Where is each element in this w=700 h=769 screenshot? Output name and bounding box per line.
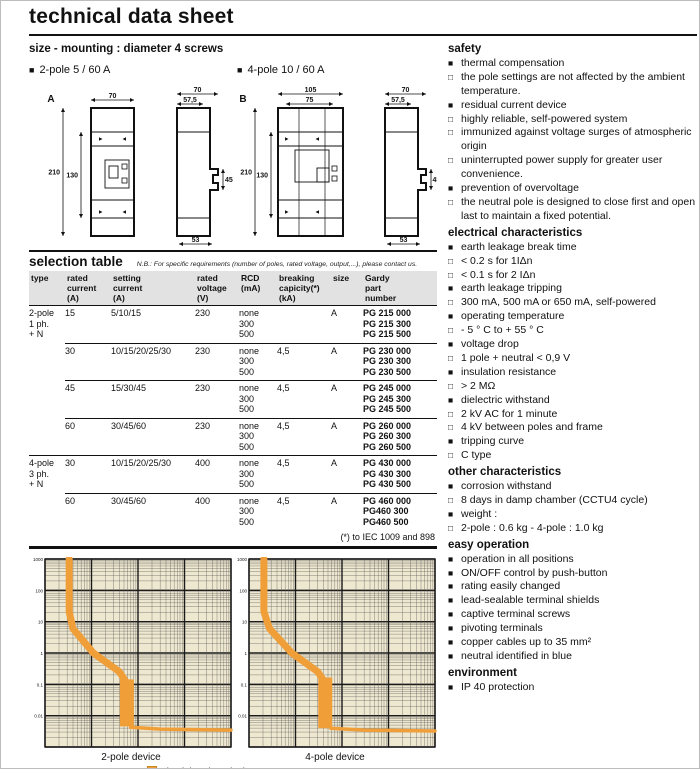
table-cell: 15/30/45 [111, 381, 195, 419]
table-cell: 400 [195, 493, 239, 530]
list-item: ■neutral identified in blue [448, 650, 699, 664]
list-item: ■earth leakage tripping [448, 282, 699, 296]
table-cell [29, 343, 65, 381]
svg-text:0.01: 0.01 [238, 713, 247, 718]
list-item: □< 0.1 s for 2 IΔn [448, 269, 699, 283]
list-item: □2 kV AC for 1 minute [448, 408, 699, 422]
filled-square-bullet-icon: ■ [448, 435, 461, 449]
list-item-text: 1 pole + neutral < 0,9 V [461, 352, 699, 366]
list-item: □300 mA, 500 mA or 650 mA, self-powered [448, 296, 699, 310]
svg-text:1000: 1000 [237, 557, 248, 562]
list-item-text: thermal compensation [461, 57, 699, 71]
list-item: ■operation in all positions [448, 553, 699, 567]
hollow-square-bullet-icon: □ [448, 269, 461, 283]
svg-text:70: 70 [109, 93, 117, 100]
page-title: technical data sheet [29, 5, 234, 29]
table-cell: PG 215 000PG 215 300PG 215 500 [363, 306, 437, 344]
list-item-text: - 5 ° C to + 55 ° C [461, 324, 699, 338]
list-item-text: pivoting terminals [461, 622, 699, 636]
hollow-square-bullet-icon: □ [448, 296, 461, 310]
diagram-2pole: A702101307057,54553 [29, 84, 233, 246]
svg-text:100: 100 [239, 588, 247, 593]
chart-legend: circuit breaker tripping zones [147, 766, 437, 769]
column-header: Gardypartnumber [363, 271, 437, 306]
list-item: ■pivoting terminals [448, 622, 699, 636]
table-cell: none300500 [239, 306, 277, 344]
list-item-text: ON/OFF control by push-button [461, 567, 699, 581]
list-item-text: copper cables up to 35 mm² [461, 636, 699, 650]
table-cell: 4,5 [277, 381, 331, 419]
tripping-curve-charts: 10001001010.10.012-pole device1000100101… [29, 557, 437, 763]
variant-2pole-label: 2-pole 5 / 60 A [39, 64, 110, 76]
filled-square-bullet-icon: ■ [448, 99, 461, 113]
list-item-text: captive terminal screws [461, 608, 699, 622]
svg-text:210: 210 [240, 170, 252, 177]
svg-text:1000: 1000 [33, 557, 44, 562]
table-cell [277, 306, 331, 344]
sidebar-section-title: other characteristics [448, 466, 699, 480]
list-item: ■lead-sealable terminal shields [448, 594, 699, 608]
svg-text:45: 45 [433, 177, 438, 184]
svg-text:57,5: 57,5 [183, 97, 197, 104]
table-cell: A [331, 343, 363, 381]
list-item-text: earth leakage break time [461, 241, 699, 255]
hollow-square-bullet-icon: □ [448, 494, 461, 508]
list-item: ■captive terminal screws [448, 608, 699, 622]
table-cell: 30 [65, 343, 111, 381]
table-cell: 10/15/20/25/30 [111, 343, 195, 381]
variant-4pole: ■ 4-pole 10 / 60 A [237, 64, 325, 76]
svg-text:0.01: 0.01 [34, 713, 43, 718]
list-item-text: IP 40 protection [461, 681, 699, 695]
filled-square-bullet-icon: ■ [448, 580, 461, 594]
svg-text:130: 130 [256, 173, 268, 180]
list-item: □2-pole : 0.6 kg - 4-pole : 1.0 kg [448, 522, 699, 536]
sidebar-section-title: easy operation [448, 539, 699, 553]
table-cell: none300500 [239, 381, 277, 419]
hollow-square-bullet-icon: □ [448, 324, 461, 338]
table-cell: none300500 [239, 343, 277, 381]
selection-table-note: N.B.: For specific requirements (number … [137, 261, 417, 268]
list-item: ■corrosion withstand [448, 480, 699, 494]
svg-text:53: 53 [400, 237, 408, 244]
chart-plot: 10001001010.10.01 [233, 557, 437, 751]
list-item-text: weight : [461, 508, 699, 522]
hollow-square-bullet-icon: □ [448, 255, 461, 269]
svg-text:57,5: 57,5 [391, 97, 405, 104]
list-item: ■tripping curve [448, 435, 699, 449]
table-cell: PG 260 000PG 260 300PG 260 500 [363, 418, 437, 456]
list-item-text: dielectric withstand [461, 394, 699, 408]
table-cell: 45 [65, 381, 111, 419]
size-mounting-heading: size - mounting : diameter 4 screws [29, 43, 437, 55]
table-cell: 10/15/20/25/30 [111, 456, 195, 494]
hollow-square-bullet-icon: □ [448, 126, 461, 154]
list-item: ■insulation resistance [448, 366, 699, 380]
column-header: breakingcapicity(*)(kA) [277, 271, 331, 306]
list-item: □highly reliable, self-powered system [448, 113, 699, 127]
filled-square-bullet-icon: ■ [448, 366, 461, 380]
list-item-text: C type [461, 449, 699, 463]
chart-plot: 10001001010.10.01 [29, 557, 233, 751]
svg-text:105: 105 [305, 87, 317, 94]
column-header: settingcurrent(A) [111, 271, 195, 306]
table-cell: 5/10/15 [111, 306, 195, 344]
table-row: 4515/30/45230none3005004,5APG 245 000PG … [29, 381, 437, 419]
svg-text:75: 75 [306, 97, 314, 104]
list-item: ■copper cables up to 35 mm² [448, 636, 699, 650]
list-item-text: prevention of overvoltage [461, 182, 699, 196]
table-row: 3010/15/20/25/30230none3005004,5APG 230 … [29, 343, 437, 381]
list-item-text: the pole settings are not affected by th… [461, 71, 699, 99]
tripping-curve-chart: 10001001010.10.012-pole device [29, 557, 233, 763]
selection-table-title: selection table [29, 254, 123, 269]
filled-square-bullet-icon: ■ [448, 182, 461, 196]
table-cell: PG 245 000PG 245 300PG 245 500 [363, 381, 437, 419]
hollow-square-bullet-icon: □ [448, 154, 461, 182]
list-item: ■rating easily changed [448, 580, 699, 594]
hollow-square-bullet-icon: □ [448, 522, 461, 536]
list-item: ■dielectric withstand [448, 394, 699, 408]
filled-square-bullet-icon: ■ [448, 57, 461, 71]
table-cell: 15 [65, 306, 111, 344]
list-item-text: voltage drop [461, 338, 699, 352]
list-item-text: residual current device [461, 99, 699, 113]
list-item-text: the neutral pole is designed to close fi… [461, 196, 699, 224]
list-item-text: 300 mA, 500 mA or 650 mA, self-powered [461, 296, 699, 310]
svg-text:B: B [239, 94, 246, 105]
table-cell: none300500 [239, 493, 277, 530]
filled-square-bullet-icon: ■ [448, 622, 461, 636]
list-item-text: earth leakage tripping [461, 282, 699, 296]
table-row: 6030/45/60230none3005004,5APG 260 000PG … [29, 418, 437, 456]
hollow-square-bullet-icon: □ [448, 113, 461, 127]
table-cell: 30/45/60 [111, 418, 195, 456]
list-item: ■thermal compensation [448, 57, 699, 71]
list-item: □C type [448, 449, 699, 463]
list-item-text: > 2 MΩ [461, 380, 699, 394]
variant-4pole-label: 4-pole 10 / 60 A [247, 64, 324, 76]
column-header: size [331, 271, 363, 306]
svg-text:0.1: 0.1 [241, 682, 248, 687]
dimension-diagrams: A702101307057,54553 B105752101307057,545… [29, 84, 437, 246]
list-item: ■ON/OFF control by push-button [448, 567, 699, 581]
sidebar-section-title: environment [448, 667, 699, 681]
list-item-text: 2-pole : 0.6 kg - 4-pole : 1.0 kg [461, 522, 699, 536]
square-bullet-icon: ■ [237, 65, 242, 75]
filled-square-bullet-icon: ■ [448, 594, 461, 608]
selection-table-section: selection table N.B.: For specific requi… [29, 250, 437, 549]
table-cell: 60 [65, 493, 111, 530]
table-cell: 230 [195, 418, 239, 456]
svg-text:1: 1 [40, 651, 43, 656]
table-row: 4-pole3 ph.+ N3010/15/20/25/30400none300… [29, 456, 437, 494]
main-column: size - mounting : diameter 4 screws ■ 2-… [29, 43, 437, 769]
datasheet-page: technical data sheet size - mounting : d… [0, 0, 700, 769]
filled-square-bullet-icon: ■ [448, 241, 461, 255]
table-cell: 230 [195, 343, 239, 381]
selection-table: typeratedcurrent(A)settingcurrent(A)rate… [29, 271, 437, 546]
table-cell: A [331, 456, 363, 494]
list-item: □the pole settings are not affected by t… [448, 71, 699, 99]
hollow-square-bullet-icon: □ [448, 380, 461, 394]
svg-text:100: 100 [35, 588, 43, 593]
svg-text:10: 10 [38, 619, 44, 624]
list-item-text: tripping curve [461, 435, 699, 449]
list-item: □immunized against voltage surges of atm… [448, 126, 699, 154]
table-cell: 4,5 [277, 418, 331, 456]
table-cell: 4,5 [277, 456, 331, 494]
hollow-square-bullet-icon: □ [448, 449, 461, 463]
column-header: type [29, 271, 65, 306]
table-cell: 4,5 [277, 343, 331, 381]
filled-square-bullet-icon: ■ [448, 681, 461, 695]
list-item: □> 2 MΩ [448, 380, 699, 394]
svg-text:70: 70 [194, 87, 202, 94]
table-cell [29, 493, 65, 530]
filled-square-bullet-icon: ■ [448, 310, 461, 324]
table-cell: A [331, 493, 363, 530]
svg-text:70: 70 [402, 87, 410, 94]
svg-text:210: 210 [48, 170, 60, 177]
filled-square-bullet-icon: ■ [448, 338, 461, 352]
table-cell: 30 [65, 456, 111, 494]
title-rule [29, 34, 697, 36]
table-row: 6030/45/60400none3005004,5APG 460 000PG4… [29, 493, 437, 530]
table-cell: 2-pole1 ph.+ N [29, 306, 65, 344]
table-cell: none300500 [239, 456, 277, 494]
chart-caption: 4-pole device [233, 752, 437, 763]
list-item-text: rating easily changed [461, 580, 699, 594]
table-cell [29, 418, 65, 456]
hollow-square-bullet-icon: □ [448, 408, 461, 422]
list-item: ■voltage drop [448, 338, 699, 352]
list-item: □8 days in damp chamber (CCTU4 cycle) [448, 494, 699, 508]
filled-square-bullet-icon: ■ [448, 553, 461, 567]
svg-text:53: 53 [192, 237, 200, 244]
table-cell: 400 [195, 456, 239, 494]
list-item-text: uninterrupted power supply for greater u… [461, 154, 699, 182]
table-cell: A [331, 418, 363, 456]
table-cell: PG 430 000PG 430 300PG 430 500 [363, 456, 437, 494]
list-item-text: 4 kV between poles and frame [461, 421, 699, 435]
list-item: ■operating temperature [448, 310, 699, 324]
diagram-4pole: B105752101307057,54553 [233, 84, 437, 246]
table-cell: A [331, 306, 363, 344]
list-item: ■earth leakage break time [448, 241, 699, 255]
svg-text:45: 45 [225, 177, 233, 184]
list-item-text: 2 kV AC for 1 minute [461, 408, 699, 422]
filled-square-bullet-icon: ■ [448, 480, 461, 494]
tripping-curve-chart: 10001001010.10.014-pole device [233, 557, 437, 763]
list-item-text: immunized against voltage surges of atmo… [461, 126, 699, 154]
filled-square-bullet-icon: ■ [448, 567, 461, 581]
table-cell: none300500 [239, 418, 277, 456]
chart-caption: 2-pole device [29, 752, 233, 763]
table-footnote: (*) to IEC 1009 and 898 [29, 530, 437, 546]
filled-square-bullet-icon: ■ [448, 282, 461, 296]
list-item: ■prevention of overvoltage [448, 182, 699, 196]
sidebar-section-title: safety [448, 43, 699, 57]
list-item-text: highly reliable, self-powered system [461, 113, 699, 127]
list-item: ■residual current device [448, 99, 699, 113]
square-bullet-icon: ■ [29, 65, 34, 75]
table-cell: 4-pole3 ph.+ N [29, 456, 65, 494]
table-cell: PG 460 000PG460 300PG460 500 [363, 493, 437, 530]
sidebar-section-title: electrical characteristics [448, 227, 699, 241]
table-cell: 30/45/60 [111, 493, 195, 530]
table-cell: PG 230 000PG 230 300PG 230 500 [363, 343, 437, 381]
svg-text:130: 130 [66, 173, 78, 180]
filled-square-bullet-icon: ■ [448, 636, 461, 650]
list-item: □uninterrupted power supply for greater … [448, 154, 699, 182]
list-item-text: < 0.1 s for 2 IΔn [461, 269, 699, 283]
list-item-text: 8 days in damp chamber (CCTU4 cycle) [461, 494, 699, 508]
table-footnote-row: (*) to IEC 1009 and 898 [29, 530, 437, 546]
list-item: □1 pole + neutral < 0,9 V [448, 352, 699, 366]
list-item-text: neutral identified in blue [461, 650, 699, 664]
table-cell [29, 381, 65, 419]
list-item: ■IP 40 protection [448, 681, 699, 695]
pole-variants: ■ 2-pole 5 / 60 A ■ 4-pole 10 / 60 A [29, 64, 437, 76]
list-item-text: < 0.2 s for 1IΔn [461, 255, 699, 269]
column-header: ratedvoltage(V) [195, 271, 239, 306]
variant-2pole: ■ 2-pole 5 / 60 A [29, 64, 237, 76]
hollow-square-bullet-icon: □ [448, 421, 461, 435]
list-item: ■weight : [448, 508, 699, 522]
svg-text:0.1: 0.1 [37, 682, 44, 687]
list-item-text: operating temperature [461, 310, 699, 324]
legend-label: circuit breaker tripping zones [162, 766, 283, 769]
filled-square-bullet-icon: ■ [448, 608, 461, 622]
list-item-text: corrosion withstand [461, 480, 699, 494]
list-item: □< 0.2 s for 1IΔn [448, 255, 699, 269]
list-item: □4 kV between poles and frame [448, 421, 699, 435]
table-cell: A [331, 381, 363, 419]
hollow-square-bullet-icon: □ [448, 196, 461, 224]
list-item-text: operation in all positions [461, 553, 699, 567]
filled-square-bullet-icon: ■ [448, 508, 461, 522]
hollow-square-bullet-icon: □ [448, 352, 461, 366]
characteristics-sidebar: safety■thermal compensation□the pole set… [448, 43, 699, 695]
table-row: 2-pole1 ph.+ N155/10/15230none300500APG … [29, 306, 437, 344]
hollow-square-bullet-icon: □ [448, 71, 461, 99]
list-item-text: insulation resistance [461, 366, 699, 380]
table-cell: 230 [195, 306, 239, 344]
filled-square-bullet-icon: ■ [448, 650, 461, 664]
list-item: □the neutral pole is designed to close f… [448, 196, 699, 224]
svg-text:10: 10 [242, 619, 248, 624]
svg-text:1: 1 [244, 651, 247, 656]
svg-text:A: A [47, 94, 54, 105]
column-header: RCD(mA) [239, 271, 277, 306]
column-header: ratedcurrent(A) [65, 271, 111, 306]
table-cell: 4,5 [277, 493, 331, 530]
list-item: □- 5 ° C to + 55 ° C [448, 324, 699, 338]
filled-square-bullet-icon: ■ [448, 394, 461, 408]
table-cell: 230 [195, 381, 239, 419]
list-item-text: lead-sealable terminal shields [461, 594, 699, 608]
table-cell: 60 [65, 418, 111, 456]
selection-table-header: selection table N.B.: For specific requi… [29, 252, 437, 271]
